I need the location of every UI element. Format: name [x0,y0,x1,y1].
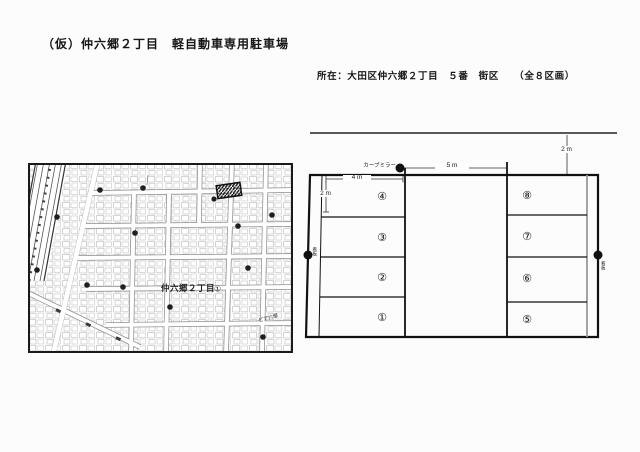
space-number-7: ⑦ [522,231,532,243]
map-marker [260,334,266,340]
right-column-dividers [507,215,587,302]
map-marker [54,214,60,220]
location-label: 所在：大田区仲六郷２丁目 ５番 街区 （全８区画） [317,68,575,82]
curve-mirror-label: カーブミラー [340,164,396,170]
dim-aisle-label: 5 m [435,163,469,170]
map-marker [34,267,40,273]
map-marker [167,304,173,310]
area-map-svg: 仲六郷２丁目 ① ピア六郷 [28,163,293,353]
space-number-6: ⑥ [522,273,532,285]
curve-mirror-dot [396,164,405,173]
signboard-label-right: 看板 [601,261,606,281]
signboard-label-left: 看板 [312,247,317,267]
area-map: 仲六郷２丁目 ① ピア六郷 [28,163,293,353]
map-district-marker: ① [214,285,221,294]
signboard-dot-right [594,251,603,260]
map-marker [269,212,275,218]
space-number-8: ⑧ [522,190,532,202]
map-marker [211,196,216,201]
space-number-5: ⑤ [522,314,532,326]
page-title: （仮）仲六郷２丁目 軽自動車専用駐車場 [42,35,289,52]
map-marker [84,282,90,288]
space-number-4: ④ [377,191,387,203]
inner-left-line [319,175,322,337]
document-page: （仮）仲六郷２丁目 軽自動車専用駐車場 所在：大田区仲六郷２丁目 ５番 街区 （… [0,0,640,452]
parking-diagram: ④ ③ ② ① ⑧ ⑦ ⑥ ⑤ カーブミラー 5 m 4 m 2 m 2 m 看… [300,110,630,360]
space-number-3: ③ [377,232,387,244]
dim-space-depth-label: 2 m [320,190,331,197]
map-marker [132,230,138,236]
parking-outer-boundary [306,175,598,337]
map-marker [235,223,241,229]
map-district-label: 仲六郷２丁目 [161,283,215,293]
map-marker [245,265,251,271]
map-marker [97,187,103,193]
map-marker [120,284,126,290]
dim-space-width-label: 4 m [343,175,371,182]
dim-road-offset-label: 2 m [561,146,572,153]
map-marker [140,185,146,191]
space-number-2: ② [377,272,387,284]
left-column-dividers [320,217,405,297]
right-space-numbers: ⑧ ⑦ ⑥ ⑤ [522,190,532,326]
parking-diagram-svg: ④ ③ ② ① ⑧ ⑦ ⑥ ⑤ [300,110,630,360]
map-site-marker [216,182,242,198]
space-number-1: ① [377,312,387,324]
